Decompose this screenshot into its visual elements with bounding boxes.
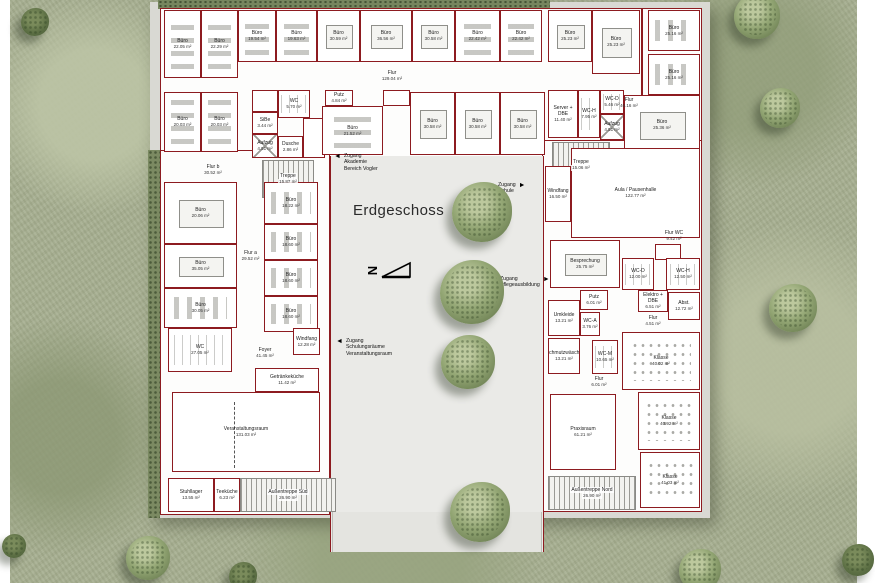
- room-umkleide: Umkleide13.21 m²: [548, 300, 580, 336]
- room-area: 3.76 m²: [582, 324, 597, 330]
- room-putz: Putz4.84 m²: [325, 90, 353, 106]
- room-büro: Büro30.58 m²: [500, 92, 545, 155]
- room-area: 21.52 m²: [344, 131, 362, 137]
- room-area: 30.59 m²: [330, 36, 348, 42]
- room-büro: Büro22.29 m²: [201, 10, 238, 78]
- room-aufzug: Aufzug4.51 m²: [252, 134, 278, 158]
- room-area: 13.55 m²: [182, 495, 200, 501]
- bush: [229, 562, 257, 583]
- entrance-annotation-zugang-pflege: ZugangPflegeausbildung►: [500, 276, 550, 289]
- room-server-dbe: Server + DBE11.40 m²: [548, 90, 578, 138]
- room-area: 4.51 m²: [604, 127, 619, 133]
- room-area: 30.58 m²: [469, 124, 487, 130]
- room-area: 30.52 m²: [204, 170, 222, 176]
- floor-plan: Büro22.05 m²Büro22.29 m²Büro19.54 m²Büro…: [0, 0, 875, 583]
- room-area: 12.72 m²: [675, 306, 693, 312]
- entrance-arrow-icon: ►: [519, 182, 526, 189]
- room-stuhllager: Stuhllager13.55 m²: [168, 478, 214, 512]
- room-area: 4.51 m²: [257, 146, 272, 152]
- room-elektro-dbe: Elektro + DBE6.51 m²: [638, 290, 668, 312]
- room-area: 6.01 m²: [586, 300, 601, 306]
- room-büro: Büro21.52 m²: [322, 106, 383, 155]
- tree: [452, 182, 512, 242]
- room: [383, 90, 410, 106]
- room-wc-h: WC-H7.95 m²: [578, 90, 600, 138]
- room-flur-a: Flur a29.52 m²: [237, 182, 264, 330]
- room-wc: WC5.70 m²: [278, 90, 310, 118]
- entrance-arrow-icon: ◄: [334, 153, 341, 160]
- room-area: 41.03 m²: [661, 480, 679, 486]
- room-sibe: SiBe3.44 m²: [252, 112, 278, 134]
- room-area: 25.23 m²: [561, 36, 579, 42]
- room-area: 61.21 m²: [574, 432, 592, 438]
- room-area: 18.60 m²: [282, 314, 300, 320]
- room-außentreppe-süd: Außentreppe Süd26.90 m²: [240, 478, 336, 512]
- room-area: 25.23 m²: [607, 42, 625, 48]
- room-area: 3.44 m²: [257, 123, 272, 129]
- room-büro: Büro25.16 m²: [648, 10, 700, 51]
- room-büro: Büro20.03 m²: [164, 92, 201, 152]
- courtyard-path: [332, 512, 542, 552]
- room-aula-pausenhalle: Aula / Pausenhalle122.77 m²: [571, 148, 700, 238]
- room: [252, 90, 278, 112]
- room-büro: Büro30.58 m²: [410, 92, 455, 155]
- room-wc-m: WC-M10.65 m²: [592, 340, 618, 374]
- room-area: 6.01 m²: [591, 382, 606, 388]
- room-area: 4.84 m²: [331, 98, 346, 104]
- room-area: 22.42 m²: [512, 36, 530, 42]
- room-area: 6.51 m²: [645, 304, 660, 310]
- room-label: Elektro + DBE: [639, 292, 667, 304]
- entrance-label: ZugangSchulungsräumeVeranstaltungsraum: [346, 338, 392, 357]
- room-area: 6.23 m²: [219, 495, 234, 501]
- room-area: 13.21 m²: [555, 318, 573, 324]
- room-area: 18.60 m²: [282, 242, 300, 248]
- room-area: 27.05 m²: [191, 350, 209, 356]
- room-schmutzwäsche: Schmutzwäsche13.21 m²: [548, 338, 580, 374]
- room-area: 22.29 m²: [211, 44, 229, 50]
- room-area: 18.22 m²: [282, 203, 300, 209]
- room-aufzug: Aufzug4.51 m²: [600, 114, 624, 140]
- room-area: 30.58 m²: [425, 36, 443, 42]
- room-windfang: Windfang16.50 m²: [545, 166, 571, 222]
- room-büro: Büro25.23 m²: [548, 10, 592, 62]
- room-area: 40.16 m²: [620, 103, 638, 109]
- room-area: 12.50 m²: [674, 274, 692, 280]
- tree: [769, 284, 817, 332]
- bush: [2, 534, 26, 558]
- room-wc-h: WC-H12.50 m²: [666, 258, 700, 290]
- room-area: 22.05 m²: [174, 44, 192, 50]
- room-area: 13.21 m²: [555, 356, 573, 362]
- entrance-label: ZugangPflegeausbildung: [500, 276, 540, 289]
- room-area: 12.28 m²: [298, 342, 316, 348]
- room-area: 30.05 m²: [192, 308, 210, 314]
- room-teeküche: Teeküche6.23 m²: [214, 478, 240, 512]
- room-büro: Büro19.63 m²: [276, 10, 317, 62]
- room-praxisraum: Praxisraum61.21 m²: [550, 394, 616, 470]
- room-büro: Büro20.06 m²: [164, 182, 237, 244]
- room-außentreppe-nord: Außentreppe Nord26.90 m²: [548, 476, 636, 510]
- room-area: 9.42 m²: [666, 236, 681, 242]
- room-dusche: Dusche2.86 m²: [278, 136, 303, 158]
- room-büro: Büro30.58 m²: [412, 10, 455, 62]
- north-letter: N: [365, 265, 380, 274]
- room-area: 25.36 m²: [653, 125, 671, 131]
- room-flur: Flur129.04 m²: [238, 62, 546, 90]
- room-area: 122.77 m²: [625, 193, 645, 199]
- room-büro: Büro18.60 m²: [264, 224, 318, 260]
- room-wc: WC27.05 m²: [168, 328, 232, 372]
- room-büro: Büro18.22 m²: [264, 182, 318, 224]
- room-area: 30.58 m²: [424, 124, 442, 130]
- room-area: 30.58 m²: [514, 124, 532, 130]
- room-besprechung: Besprechung25.75 m²: [550, 240, 620, 288]
- north-triangle: [377, 258, 417, 282]
- bush: [842, 544, 874, 576]
- room-putz: Putz6.01 m²: [580, 290, 608, 310]
- room-büro: Büro19.54 m²: [238, 10, 276, 62]
- room-getränkeküche: Getränkeküche11.42 m²: [255, 368, 319, 392]
- room-area: 15.06 m²: [571, 165, 591, 171]
- room-büro: Büro18.60 m²: [264, 260, 318, 296]
- room-klasse: Klasse40.02 m²: [622, 332, 700, 390]
- tree: [760, 88, 800, 128]
- room-area: 19.63 m²: [288, 36, 306, 42]
- room-area: 22.42 m²: [469, 36, 487, 42]
- room-area: 7.95 m²: [581, 114, 596, 120]
- room-flur: Flur4.51 m²: [638, 312, 668, 330]
- room-label: Server + DBE: [549, 105, 577, 117]
- floor-title: Erdgeschoss: [353, 202, 444, 219]
- room-wc-d: WC-D12.00 m²: [622, 258, 654, 290]
- room-area: 10.65 m²: [596, 357, 614, 363]
- room-area: 40.92 m²: [660, 421, 678, 427]
- hedge-strip-left: [148, 150, 160, 518]
- room-büro: Büro25.16 m²: [648, 54, 700, 95]
- room-wc-d: WC-D5.46 m²: [600, 90, 624, 114]
- room-area: 15.87 m²: [278, 179, 298, 185]
- tree: [679, 549, 721, 583]
- room-area: 25.75 m²: [576, 264, 594, 270]
- room-area: 25.16 m²: [665, 75, 683, 81]
- tree: [450, 482, 510, 542]
- room-büro: Büro22.42 m²: [500, 10, 542, 62]
- room-büro: Büro22.05 m²: [164, 10, 201, 78]
- entrance-arrow-icon: ◄: [336, 338, 343, 345]
- room-area: 20.03 m²: [174, 122, 192, 128]
- room-area: 35.05 m²: [192, 266, 210, 272]
- folding-partition: [234, 402, 235, 468]
- tree: [441, 335, 495, 389]
- room-area: 26.90 m²: [278, 495, 298, 501]
- room-abst-: Abst.12.72 m²: [668, 292, 700, 320]
- room-area: 20.06 m²: [192, 213, 210, 219]
- room-area: 36.56 m²: [377, 36, 395, 42]
- room-flur-b: Flur b30.52 m²: [164, 158, 262, 182]
- room-area: 16.50 m²: [549, 194, 567, 200]
- room-büro: Büro36.56 m²: [360, 10, 412, 62]
- room-area: 4.51 m²: [645, 321, 660, 327]
- room-büro: Büro20.03 m²: [201, 92, 238, 152]
- room-klasse: Klasse41.03 m²: [640, 452, 700, 508]
- room-area: 11.40 m²: [554, 117, 571, 123]
- room-wc-a: WC-A3.76 m²: [580, 312, 600, 336]
- entrance-annotation-zugang-schulung: ◄ZugangSchulungsräumeVeranstaltungsraum: [336, 338, 392, 357]
- entrance-arrow-icon: ►: [543, 276, 550, 283]
- room-büro: Büro30.58 m²: [455, 92, 500, 155]
- entrance-label: ZugangAkademieBereich Vogler: [344, 153, 378, 172]
- room-veranstaltungsraum: Veranstaltungsraum131.03 m²: [172, 392, 320, 472]
- room-area: 20.03 m²: [211, 122, 229, 128]
- bush: [21, 8, 49, 36]
- room-area: 18.60 m²: [282, 278, 300, 284]
- tree: [440, 260, 504, 324]
- room-flur: Flur6.01 m²: [580, 374, 618, 390]
- room-area: 5.70 m²: [286, 104, 301, 110]
- room-büro: Büro30.59 m²: [317, 10, 360, 62]
- room-flur-wc: Flur WC9.42 m²: [648, 228, 700, 244]
- room-area: 41.45 m²: [256, 353, 274, 359]
- room-area: 2.86 m²: [283, 147, 298, 153]
- room-area: 12.00 m²: [629, 274, 647, 280]
- room-area: 131.03 m²: [236, 432, 256, 438]
- room-area: 5.46 m²: [604, 102, 619, 108]
- room-büro: Büro18.60 m²: [264, 296, 318, 332]
- room-area: 40.02 m²: [652, 361, 670, 367]
- room-area: 19.54 m²: [248, 36, 266, 42]
- room-büro: Büro22.42 m²: [455, 10, 500, 62]
- tree: [126, 536, 170, 580]
- room-area: 129.04 m²: [382, 76, 402, 82]
- room-area: 26.90 m²: [582, 493, 602, 499]
- room-area: 29.52 m²: [242, 256, 260, 262]
- room-area: 11.42 m²: [278, 380, 295, 386]
- entrance-annotation-zugang-akademie: ◄ZugangAkademieBereich Vogler: [334, 153, 378, 172]
- room-klasse: Klasse40.92 m²: [638, 392, 700, 450]
- room-büro: Büro30.05 m²: [164, 288, 237, 328]
- north-arrow-icon: N: [368, 258, 417, 282]
- room-windfang: Windfang12.28 m²: [293, 328, 320, 355]
- room-area: 25.16 m²: [665, 31, 683, 37]
- room-büro: Büro35.05 m²: [164, 244, 237, 288]
